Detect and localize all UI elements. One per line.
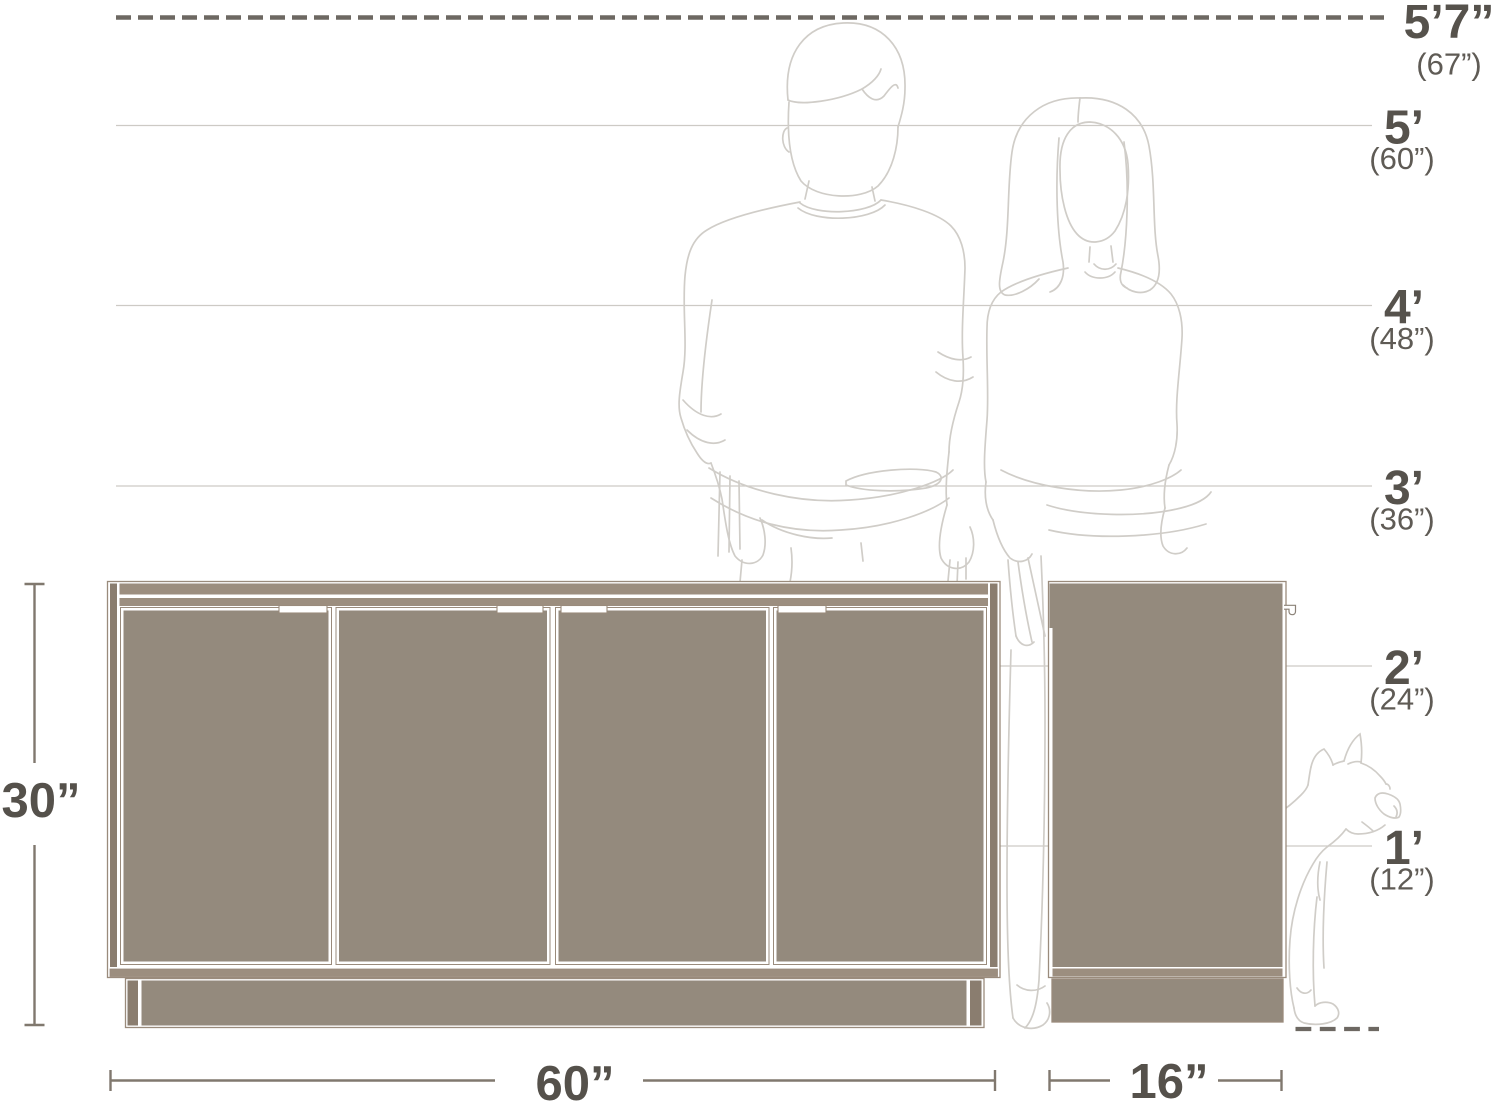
svg-text:30”: 30” bbox=[1, 774, 80, 828]
svg-text:5’7”: 5’7” bbox=[1404, 0, 1495, 49]
svg-text:16”: 16” bbox=[1129, 1055, 1208, 1104]
svg-text:(24”): (24”) bbox=[1369, 682, 1434, 717]
svg-text:(48”): (48”) bbox=[1369, 321, 1434, 356]
svg-text:60”: 60” bbox=[535, 1057, 614, 1104]
svg-text:(60”): (60”) bbox=[1369, 141, 1434, 176]
svg-text:(12”): (12”) bbox=[1369, 862, 1434, 897]
svg-text:(36”): (36”) bbox=[1369, 502, 1434, 537]
svg-text:(67”): (67”) bbox=[1416, 47, 1481, 82]
